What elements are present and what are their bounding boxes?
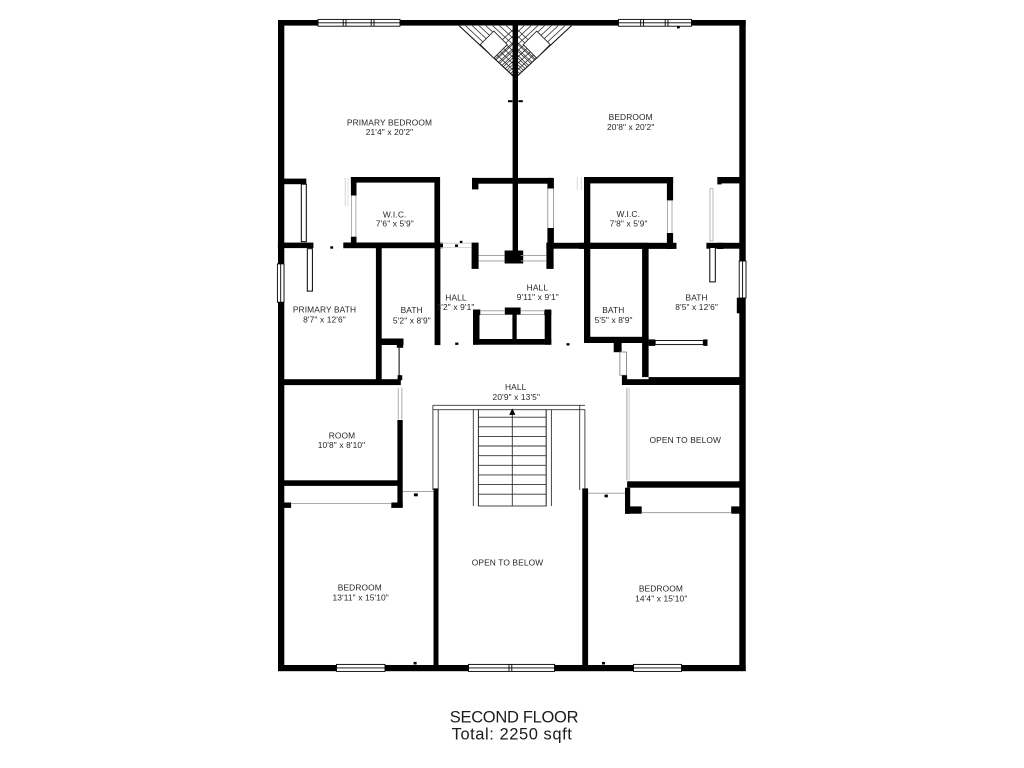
svg-text:9'11" x 9'1": 9'11" x 9'1" [517,292,559,302]
svg-text:8'7" x 12'6": 8'7" x 12'6" [303,314,346,324]
svg-text:HALL: HALL [527,283,549,293]
svg-text:7'8" x 5'9": 7'8" x 5'9" [610,219,648,229]
svg-text:BEDROOM: BEDROOM [609,112,653,122]
svg-text:Total: 2250 sqft: Total: 2250 sqft [452,726,573,744]
svg-text:20'8" x 20'2": 20'8" x 20'2" [607,122,655,132]
svg-text:HALL: HALL [505,382,527,392]
svg-text:10'8" x 8'10": 10'8" x 8'10" [318,440,366,450]
svg-text:PRIMARY BATH: PRIMARY BATH [293,305,356,315]
svg-text:PRIMARY BEDROOM: PRIMARY BEDROOM [347,117,432,127]
svg-text:13'11" x 15'10": 13'11" x 15'10" [332,592,388,602]
svg-text:BATH: BATH [602,305,624,315]
svg-text:7'6" x 5'9": 7'6" x 5'9" [376,219,414,229]
svg-text:14'4" x 15'10": 14'4" x 15'10" [635,594,687,604]
svg-text:BATH: BATH [401,305,423,315]
svg-text:SECOND FLOOR: SECOND FLOOR [450,709,579,727]
svg-text:20'9" x 13'5": 20'9" x 13'5" [493,392,541,402]
svg-text:OPEN TO BELOW: OPEN TO BELOW [472,558,544,568]
svg-text:21'4" x 20'2": 21'4" x 20'2" [366,127,414,137]
svg-text:5'5" x 8'9": 5'5" x 8'9" [595,315,633,325]
svg-text:5'2" x 8'9": 5'2" x 8'9" [393,316,431,326]
svg-text:BEDROOM: BEDROOM [639,584,683,594]
svg-text:3'2" x 9'1": 3'2" x 9'1" [437,302,475,312]
svg-text:8'5" x 12'6": 8'5" x 12'6" [675,302,718,312]
svg-text:BEDROOM: BEDROOM [338,583,382,593]
svg-text:OPEN TO BELOW: OPEN TO BELOW [650,435,722,445]
svg-text:HALL: HALL [445,293,467,303]
